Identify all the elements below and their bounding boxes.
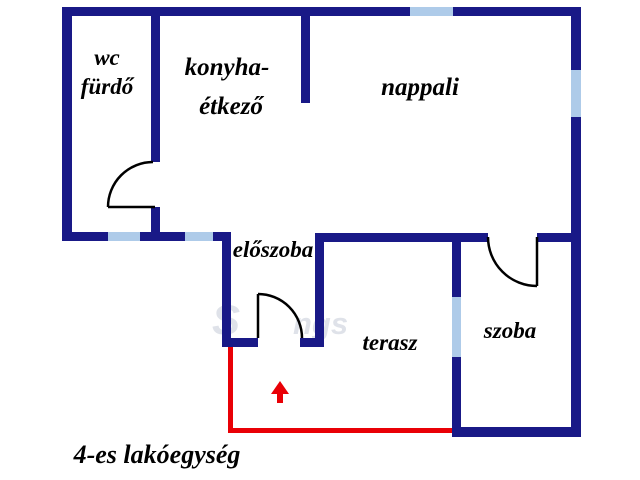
entrance-arrow-icon	[271, 381, 289, 403]
door-wc-swing	[108, 162, 155, 207]
door-szoba-swing	[488, 237, 537, 286]
room-label-etkezo: étkező	[199, 93, 263, 121]
door-eloszoba-swing	[258, 294, 302, 338]
room-label-szoba: szoba	[484, 318, 536, 344]
room-label-wc: wc	[94, 45, 120, 71]
floor-plan: S ngs	[0, 0, 640, 480]
room-label-terasz: terasz	[363, 330, 418, 356]
room-label-eloszoba: előszoba	[233, 237, 314, 263]
room-label-nappali: nappali	[381, 74, 459, 102]
room-label-konyha: konyha-	[185, 54, 270, 82]
door-and-arrow-overlay	[0, 0, 640, 480]
room-label-furdo: fürdő	[81, 74, 133, 100]
plan-caption: 4-es lakóegység	[74, 440, 241, 470]
